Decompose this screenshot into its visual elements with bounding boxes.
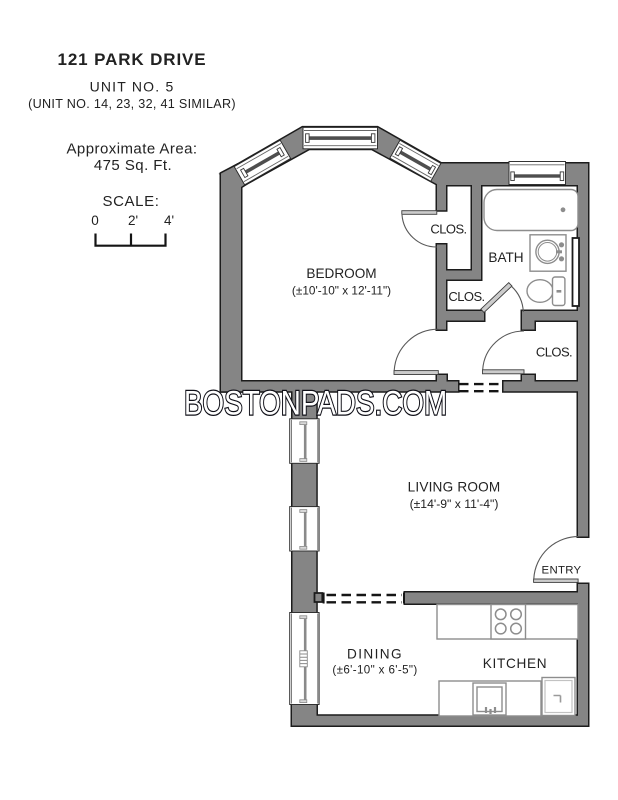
svg-text:(±14'-9" x 11'-4"): (±14'-9" x 11'-4") (410, 497, 499, 511)
svg-text:BOSTONPADS.COM: BOSTONPADS.COM (184, 384, 447, 422)
svg-text:LIVING ROOM: LIVING ROOM (408, 480, 501, 495)
svg-text:2': 2' (128, 213, 138, 228)
svg-text:475 Sq. Ft.: 475 Sq. Ft. (94, 157, 172, 174)
svg-text:DINING: DINING (347, 647, 403, 662)
svg-text:BEDROOM: BEDROOM (306, 266, 376, 281)
svg-text:BATH: BATH (488, 250, 523, 265)
svg-text:(UNIT NO. 14, 23, 32, 41 SIMIL: (UNIT NO. 14, 23, 32, 41 SIMILAR) (28, 97, 236, 111)
svg-text:0: 0 (91, 213, 99, 228)
svg-text:CLOS.: CLOS. (430, 222, 466, 237)
svg-text:CLOS.: CLOS. (448, 289, 484, 304)
svg-text:UNIT NO. 5: UNIT NO. 5 (90, 79, 175, 95)
svg-text:121 PARK DRIVE: 121 PARK DRIVE (58, 50, 207, 69)
svg-text:(±10'-10" x 12'-11"): (±10'-10" x 12'-11") (292, 284, 391, 298)
svg-text:CLOS.: CLOS. (536, 345, 572, 360)
svg-text:Approximate Area:: Approximate Area: (66, 141, 197, 158)
svg-text:4': 4' (164, 213, 174, 228)
svg-text:(±6'-10" x 6'-5"): (±6'-10" x 6'-5") (332, 664, 417, 677)
svg-text:SCALE:: SCALE: (103, 193, 160, 210)
svg-text:ENTRY: ENTRY (542, 565, 582, 577)
svg-text:KITCHEN: KITCHEN (483, 656, 548, 671)
